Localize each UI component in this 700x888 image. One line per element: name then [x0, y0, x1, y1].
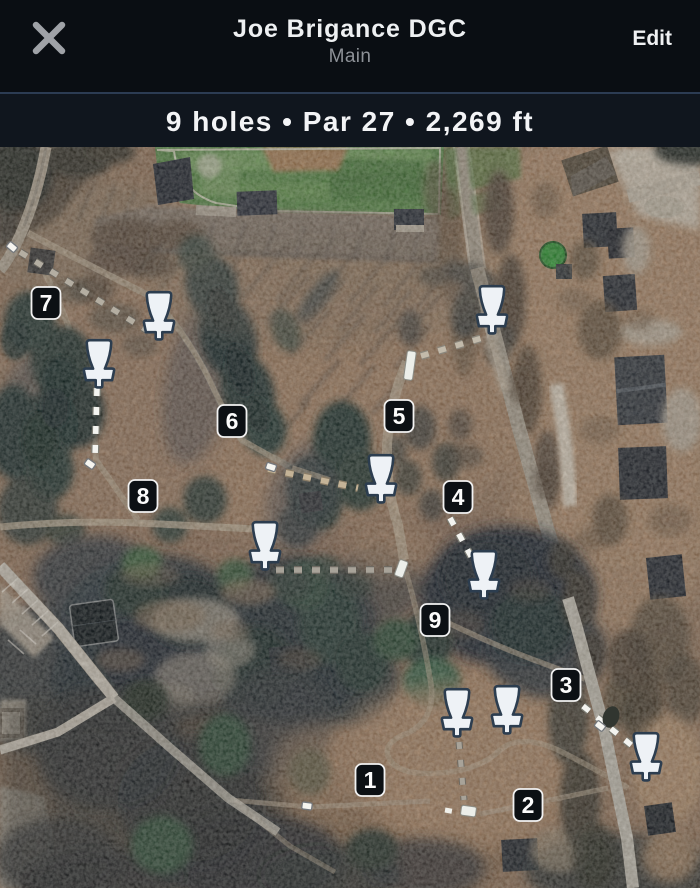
- svg-text:8: 8: [137, 483, 150, 509]
- svg-text:9: 9: [429, 607, 442, 633]
- svg-text:1: 1: [364, 767, 377, 793]
- svg-text:2: 2: [522, 792, 535, 818]
- svg-text:7: 7: [40, 290, 53, 316]
- svg-text:3: 3: [560, 672, 573, 698]
- svg-text:5: 5: [393, 403, 406, 429]
- svg-text:6: 6: [226, 408, 239, 434]
- svg-text:4: 4: [452, 484, 465, 510]
